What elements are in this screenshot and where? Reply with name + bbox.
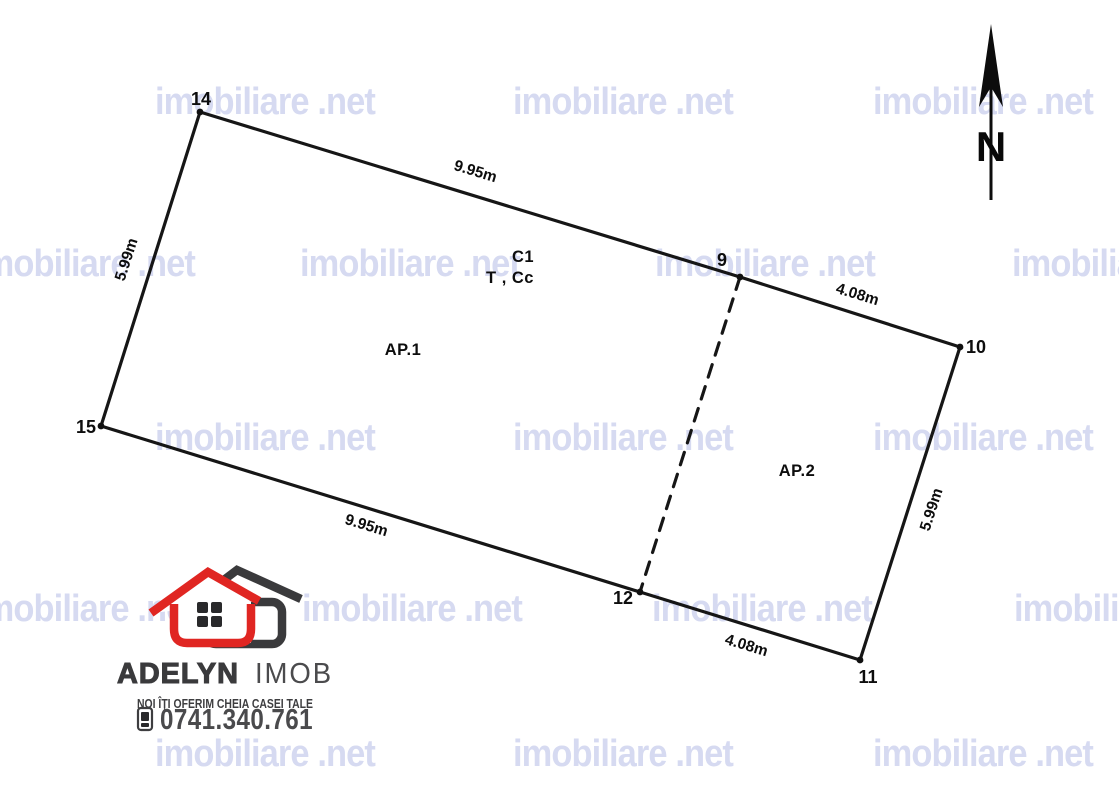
vertex-label: 12 <box>613 588 633 608</box>
vertex-dot <box>857 657 864 664</box>
watermark-text: imobiliare .net <box>155 81 376 123</box>
mobile-phone-icon <box>138 708 152 730</box>
vertex-label: 14 <box>191 89 211 109</box>
dimension-label: 9.95m <box>343 511 390 540</box>
watermark-text: imobiliare .net <box>0 243 196 285</box>
vertex-label: 10 <box>966 337 986 357</box>
dimension-label: 5.99m <box>917 486 947 533</box>
watermark-text: imobiliare .net <box>873 733 1094 775</box>
vertex-dot <box>197 109 204 116</box>
vertex-dot <box>637 589 644 596</box>
watermark-text: imobiliare .net <box>652 588 873 630</box>
watermark-text: imobiliare .net <box>513 733 734 775</box>
watermark-text: imobiliare .net <box>1012 243 1119 285</box>
plan-svg: imobiliare .netimobiliare .netimobiliare… <box>0 0 1119 800</box>
window-pane <box>211 602 222 613</box>
watermark-text: imobiliare .net <box>873 417 1094 459</box>
vertex-label: 15 <box>76 417 96 437</box>
vertex-dot <box>957 344 964 351</box>
north-label: N <box>976 123 1006 170</box>
watermark-text: imobiliare .net <box>1014 588 1119 630</box>
window-pane <box>211 616 222 627</box>
area-label: T , Cc <box>486 269 534 287</box>
area-label: AP.2 <box>779 462 816 480</box>
logo-name-primary: ADELYN <box>117 658 239 690</box>
window-pane <box>197 616 208 627</box>
cadastral-plan-canvas: imobiliare .netimobiliare .netimobiliare… <box>0 0 1119 800</box>
watermark-text: imobiliare .net <box>513 81 734 123</box>
window-pane <box>197 602 208 613</box>
area-label: C1 <box>512 248 534 266</box>
vertex-label: 11 <box>858 667 877 687</box>
dimension-label: 4.08m <box>723 631 770 660</box>
watermark-text: imobiliare .net <box>655 243 876 285</box>
watermark-text: imobiliare .net <box>155 733 376 775</box>
dimension-label: 9.95m <box>452 157 499 186</box>
watermark-text: imobiliare .net <box>302 588 523 630</box>
logo-houses-icon <box>151 570 301 644</box>
watermark-text: imobiliare .net <box>513 417 734 459</box>
logo-phone-number: 0741.340.761 <box>160 704 313 736</box>
parcel-edge <box>860 347 960 660</box>
vertex-label: 9 <box>717 250 727 270</box>
vertex-dot <box>737 274 744 281</box>
area-label: AP.1 <box>385 341 422 359</box>
logo-name-secondary: IMOB <box>255 658 333 690</box>
vertex-dot <box>98 423 105 430</box>
